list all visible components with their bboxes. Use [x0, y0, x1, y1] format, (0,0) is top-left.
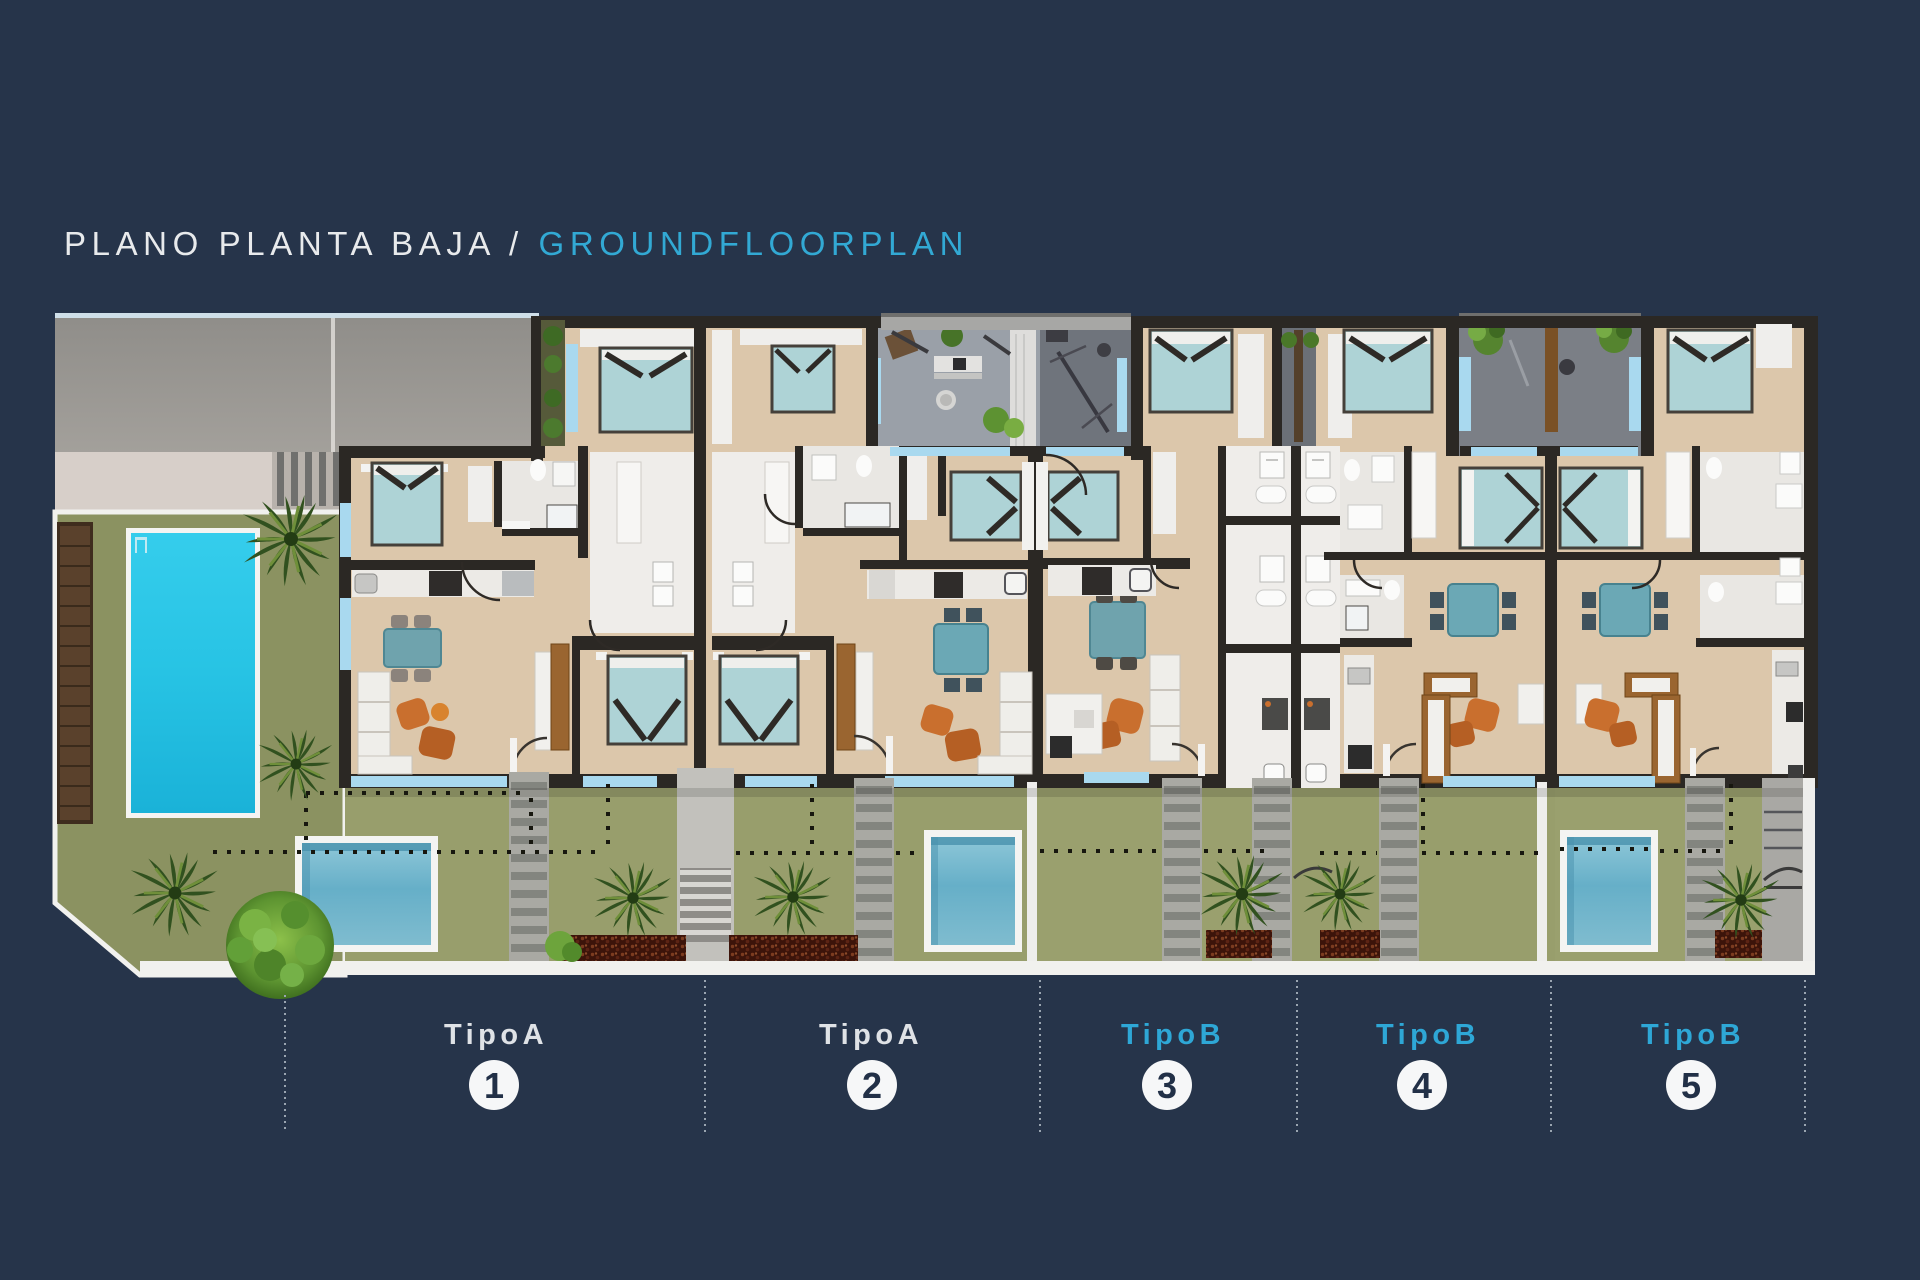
- svg-text:1: 1: [484, 1065, 504, 1106]
- svg-text:TipoA: TipoA: [444, 1019, 548, 1051]
- svg-text:TipoB: TipoB: [1641, 1019, 1745, 1051]
- svg-text:4: 4: [1412, 1065, 1432, 1106]
- svg-text:5: 5: [1681, 1065, 1701, 1106]
- svg-text:TipoA: TipoA: [819, 1019, 923, 1051]
- svg-text:TipoB: TipoB: [1121, 1019, 1225, 1051]
- svg-text:TipoB: TipoB: [1376, 1019, 1480, 1051]
- svg-text:2: 2: [862, 1065, 882, 1106]
- svg-text:3: 3: [1157, 1065, 1177, 1106]
- svg-text:PLANO PLANTA BAJA / GROUNDFLO: PLANO PLANTA BAJA / GROUNDFLOORPLAN: [64, 225, 969, 262]
